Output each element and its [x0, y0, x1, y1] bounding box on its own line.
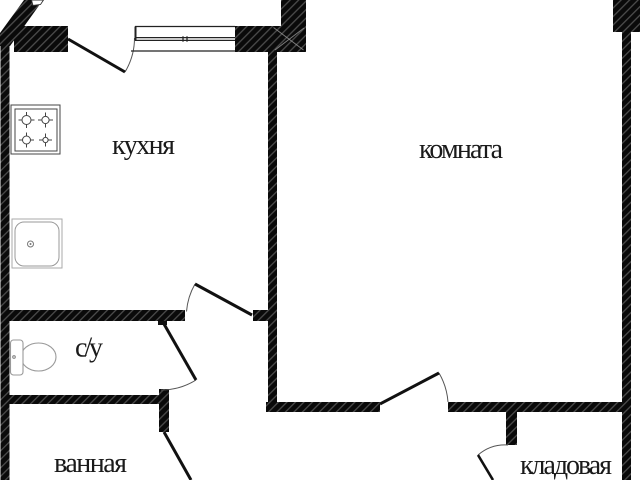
svg-text:кухня: кухня — [112, 130, 175, 161]
svg-text:ванная: ванная — [54, 448, 127, 479]
svg-text:комната: комната — [419, 134, 504, 165]
svg-text:с/у: с/у — [75, 333, 103, 364]
svg-text:кладовая: кладовая — [520, 450, 612, 480]
